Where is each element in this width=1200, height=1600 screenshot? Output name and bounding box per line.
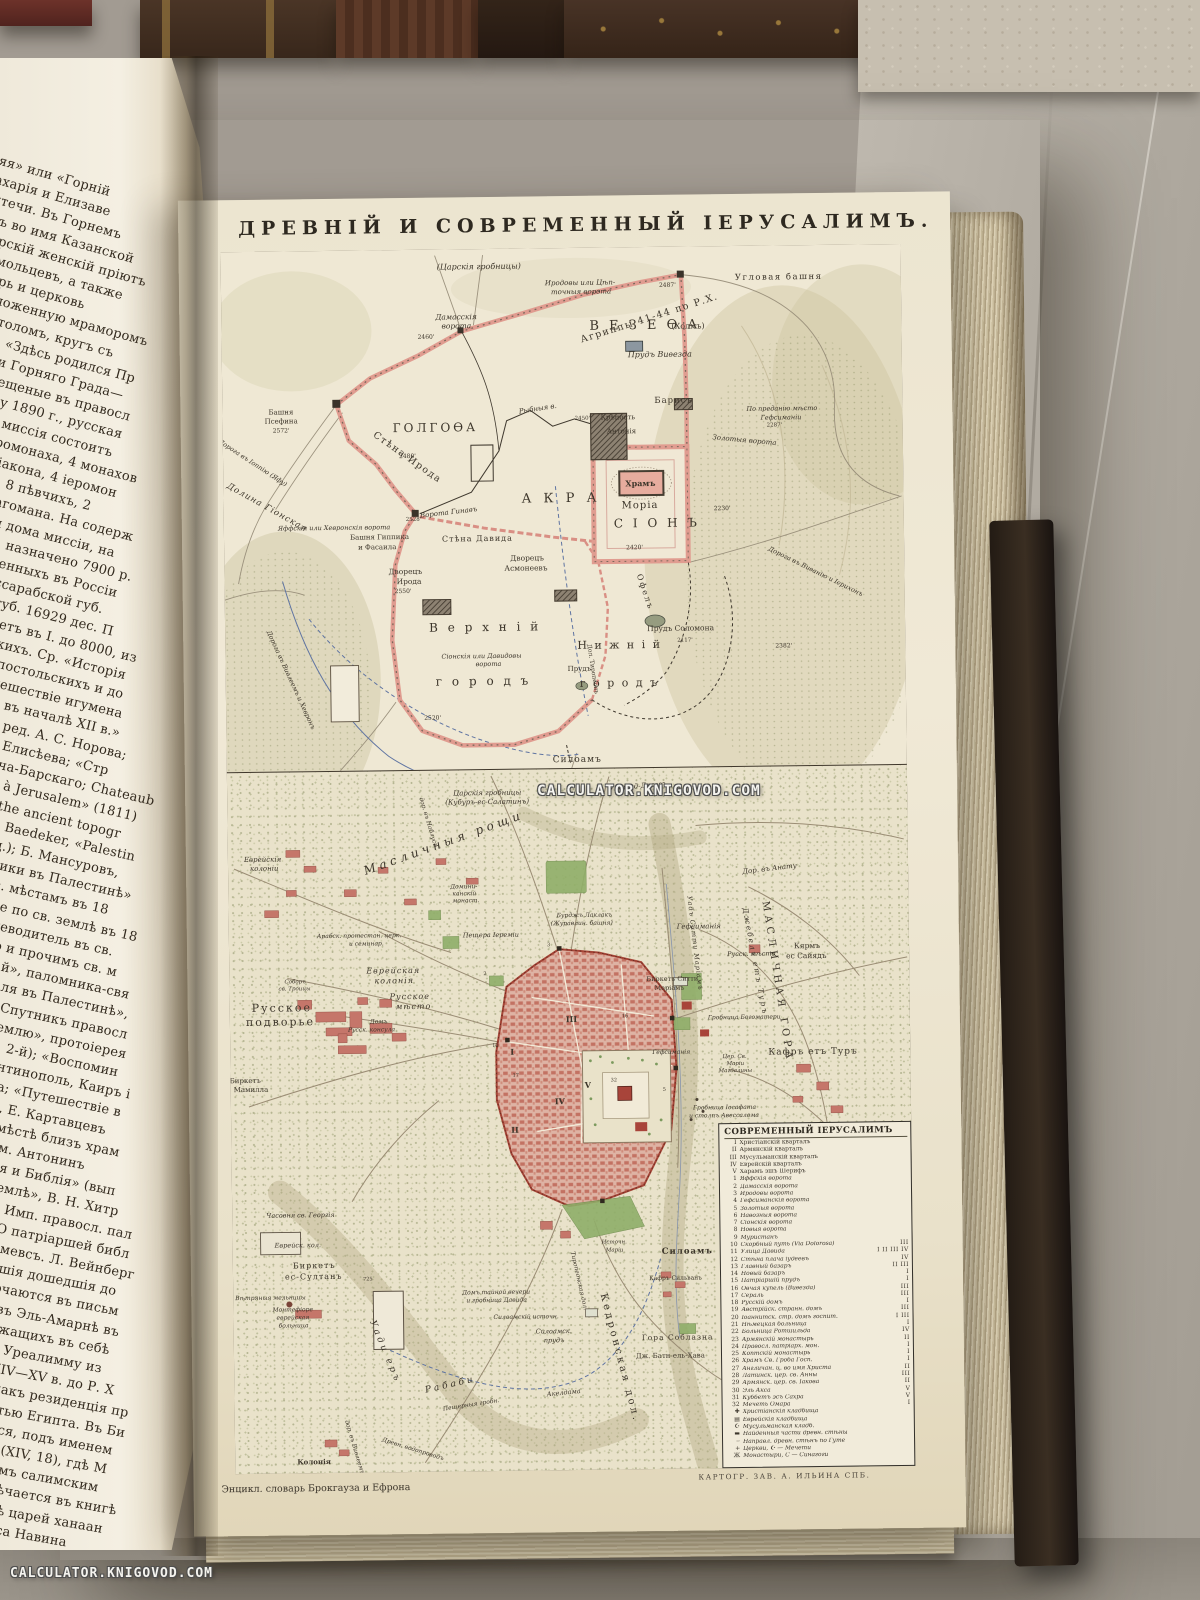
map-label: Кедронская дол. — [598, 1293, 641, 1424]
map-label: и столпъ Авессалома — [689, 1113, 759, 1120]
map-label: Гора Соблазна — [642, 1333, 714, 1341]
map-label: С І О Н Ъ — [614, 516, 700, 529]
map-label: 2528' — [406, 518, 422, 524]
map-label: Барисъ — [654, 396, 693, 405]
map-label: 2572' — [273, 428, 290, 434]
map-label: V — [585, 1081, 591, 1089]
map-label: точныя ворота — [551, 288, 611, 296]
map-label: 2287' — [767, 423, 783, 429]
map-label: Офелъ — [635, 573, 655, 611]
map-label: Кафръ Сильванъ — [649, 1275, 702, 1282]
map-label: Русск. консула — [348, 1027, 395, 1034]
map-label: Крѣпость — [601, 414, 636, 421]
map-label: Акелдама — [546, 1388, 581, 1398]
map-label: Пещерныя гробн. — [443, 1398, 500, 1413]
map-label: Арабск. протестан. церк. — [317, 933, 401, 940]
legend-item: ЖМонастыри, С — Синагоги — [728, 1451, 911, 1461]
map-label: Псефина — [265, 418, 298, 425]
map-label: и Фасаила — [358, 544, 396, 551]
map-label: и семинар. — [349, 941, 384, 947]
map-label: III — [566, 1015, 577, 1023]
map-label: Моріа — [622, 501, 659, 511]
map-label: подворье — [246, 1016, 315, 1028]
background-books — [0, 0, 1200, 60]
map-label: Магдалины — [719, 1069, 753, 1075]
map-legend: СОВРЕМЕННЫЙ ІЕРУСАЛИМЪ IХристіанскій ква… — [718, 1121, 915, 1468]
map-label: больница — [279, 1323, 309, 1329]
map-label: Масличныя рощи — [362, 809, 525, 877]
map-label: Башня Гиппика — [350, 534, 409, 542]
map-label: Рыбныя в. — [518, 403, 557, 416]
map-label: ГОЛГОѲА — [393, 421, 479, 434]
map-label: Гефсиманія — [677, 923, 721, 931]
map-label: монаст. — [452, 898, 479, 904]
map-label: г о р о д ъ — [436, 674, 532, 687]
map-label: 725 — [363, 1277, 373, 1282]
book-spine — [336, 0, 478, 58]
map-label: Еврейскія — [244, 857, 281, 864]
watermark-corner: CALCULATOR.KNIGOVOD.COM — [10, 1566, 213, 1581]
map-label: Маріи — [606, 1248, 624, 1254]
map-label: Соборъ — [284, 980, 305, 986]
legend-title: СОВРЕМЕННЫЙ ІЕРУСАЛИМЪ — [724, 1125, 907, 1139]
map-label: Дворецъ — [510, 554, 544, 562]
map-label: Бурджъ Лаклакъ — [557, 913, 612, 920]
map-label: Асмонеевъ — [504, 564, 547, 572]
map-label: Ирода — [396, 578, 421, 586]
map-label: 16 — [622, 1014, 628, 1019]
map-label: 3 — [547, 943, 550, 948]
map-label: 2420' — [626, 545, 643, 551]
book-spine — [0, 0, 92, 26]
map-label: Маріамъ — [654, 985, 684, 992]
map-label: ес-Султанъ — [285, 1273, 343, 1282]
map-label: I — [510, 1048, 514, 1056]
map-label: ес Сайядъ — [786, 952, 826, 960]
map-label: 2450' — [575, 417, 591, 423]
map-label: Гробница Іосафата — [693, 1105, 756, 1112]
map-label: Иродовы или Цѣп- — [545, 279, 615, 287]
map-label: По преданію мѣсто — [746, 405, 817, 412]
map-label: Прудъ Соломона — [647, 624, 714, 632]
book-spine — [478, 0, 564, 58]
map-label: 17 — [513, 1074, 519, 1079]
map-label: Силоамъ — [662, 1247, 713, 1256]
map-label: Дорога въ Виѳлеемъ и Хевронъ — [265, 630, 316, 731]
map-label: дор. въ Виѳлеемъ — [343, 1420, 365, 1474]
map-label: Мамилла — [234, 1087, 269, 1094]
map-label: прудъ — [544, 1337, 565, 1344]
map-label: 2460' — [418, 335, 435, 341]
map-label: колонія — [374, 977, 414, 985]
map-label: Дор. въ Анату — [742, 863, 797, 876]
map-label: Угловая башня — [735, 273, 823, 283]
map-label: IV — [555, 1097, 565, 1105]
map-label: Колонія — [297, 1458, 331, 1465]
map-label: (Холмъ) — [671, 322, 704, 330]
map-label: Храмъ — [625, 479, 655, 487]
map-label: Гефсиманія — [652, 1050, 690, 1056]
photo-of-open-atlas-book: Горняя» или «Горнійли Захарія и ЕлизавеП… — [0, 0, 1200, 1600]
map-label: Прудъ Виѳезда — [628, 350, 692, 359]
light-book — [858, 0, 1200, 92]
plate-caption-publisher: Энцикл. словарь Брокгауза и Ефрона — [222, 1482, 411, 1495]
map-label: 2550' — [395, 589, 412, 595]
plate-caption-cartographer: КАРТОГР. ЗАВ. А. ИЛЬИНА СПБ. — [698, 1470, 870, 1481]
map-label: Царскія гробницы — [453, 790, 521, 798]
map-label: Маріи — [726, 1062, 744, 1068]
map-label: еврейская — [276, 1315, 309, 1321]
map-label: (Журавлин. башня) — [551, 921, 613, 928]
book-gutter-shadow — [160, 56, 218, 1556]
map-label: св. Троицы — [278, 987, 310, 993]
map-label: Цер. Св. — [722, 1055, 746, 1061]
map-label: ворота — [441, 322, 471, 330]
map-label: Башня — [268, 409, 293, 416]
map-label: 32 — [611, 1078, 617, 1083]
map-label: 2 — [483, 972, 486, 977]
map-label: Еврейск. кол. — [275, 1242, 321, 1249]
map-label: Источн. — [602, 1240, 627, 1246]
map-label: Прудъ — [568, 666, 592, 673]
map-label: 2480' — [399, 454, 416, 460]
map-label: Сіонскія или Давидовы — [441, 653, 521, 660]
map-label: Монтефіоре — [272, 1307, 313, 1313]
map-label: Дорога въ Виѳанію и Іерихонъ — [767, 546, 864, 598]
map-label: 2382' — [775, 643, 792, 649]
map-label: Биркетъ — [293, 1262, 336, 1271]
map-label: Биркетъ Ситти — [646, 975, 698, 982]
ancient-map-labels: (Царскія гробницы)Иродовы или Цѣп-точныя… — [221, 244, 907, 772]
map-label: Гробница Богоматери — [708, 1014, 781, 1021]
map-label: В е р х н і й — [429, 620, 541, 633]
map-label: Силоамск. — [536, 1328, 572, 1335]
map-label: 2487' — [659, 283, 676, 289]
map-label: 2230' — [714, 506, 731, 512]
map-label: МАСЛИЧНАЯ ГОРА — [760, 901, 795, 1064]
map-label: Тиропеонская дол. — [569, 1251, 588, 1311]
map-label: 5 — [663, 1088, 666, 1093]
map-label: мѣсто — [396, 1003, 432, 1011]
map-label: Уади еръ — [367, 1319, 401, 1385]
map-label: Силоамскій источн. — [494, 1314, 559, 1321]
map-label: (Кубуръ-ес-Салатинъ) — [445, 799, 529, 807]
map-label: Ворота Гинаѳъ — [420, 506, 478, 520]
ancient-jerusalem-map: (Царскія гробницы)Иродовы или Цѣп-точныя… — [221, 244, 907, 772]
plate-title: ДРЕВНІЙ И СОВРЕМЕННЫЙ ІЕРУСАЛИМЪ. — [238, 211, 798, 240]
map-label: Рабаби — [424, 1376, 476, 1396]
map-plate-page: ДРЕВНІЙ И СОВРЕМЕННЫЙ ІЕРУСАЛИМЪ. — [178, 191, 966, 1536]
watermark-center: CALCULATOR.KNIGOVOD.COM — [537, 783, 761, 799]
legend-list: IХристіанскій кварталъIIАрмянскій кварта… — [724, 1138, 911, 1461]
map-label: и гробница Давида — [466, 1298, 527, 1305]
map-label: Силоамъ — [553, 756, 602, 766]
map-label: 2117' — [677, 639, 693, 645]
map-label: Домъ — [370, 1019, 388, 1025]
map-label: ворота — [476, 661, 502, 668]
map-label: Дорога въ Іоппію (Яфу) — [221, 438, 289, 488]
book-spine — [140, 0, 336, 58]
map-label: Русское — [390, 993, 430, 1001]
map-label: Пещера Іереміи — [463, 932, 519, 939]
map-label: (Царскія гробницы) — [437, 263, 521, 272]
map-label: Гефсиманіи — [761, 414, 802, 421]
map-label: 2520' — [424, 716, 441, 722]
map-label: Древн. водопроводъ — [381, 1437, 444, 1462]
map-label: Яффскія или Хевронскія ворота — [278, 524, 390, 532]
map-label: Кярмъ — [794, 942, 820, 950]
map-label: II — [511, 1126, 519, 1134]
map-label: 10 — [492, 1044, 498, 1049]
map-label: Золотыя ворота — [712, 434, 777, 447]
book-spine — [564, 0, 876, 58]
map-label: Дж. Батн-ель-Хава — [636, 1352, 705, 1360]
map-label: Дворецъ — [388, 568, 422, 576]
map-label: Вѣтряныя мельницы — [235, 1295, 306, 1302]
map-label: Еврейская — [366, 967, 420, 976]
map-label: Биркетъ — [230, 1078, 261, 1085]
map-label: А К Р А — [521, 492, 600, 506]
map-label: Часовня св. Георгія — [266, 1212, 334, 1219]
map-label: колоніи — [250, 866, 279, 873]
map-label: Дамасскія — [435, 313, 477, 321]
map-label: Антонія — [607, 428, 636, 435]
map-label: Русское — [252, 1002, 312, 1014]
map-label: Домъ тайной вечери — [462, 1290, 530, 1297]
map-label: Стѣна Давида — [442, 535, 513, 544]
